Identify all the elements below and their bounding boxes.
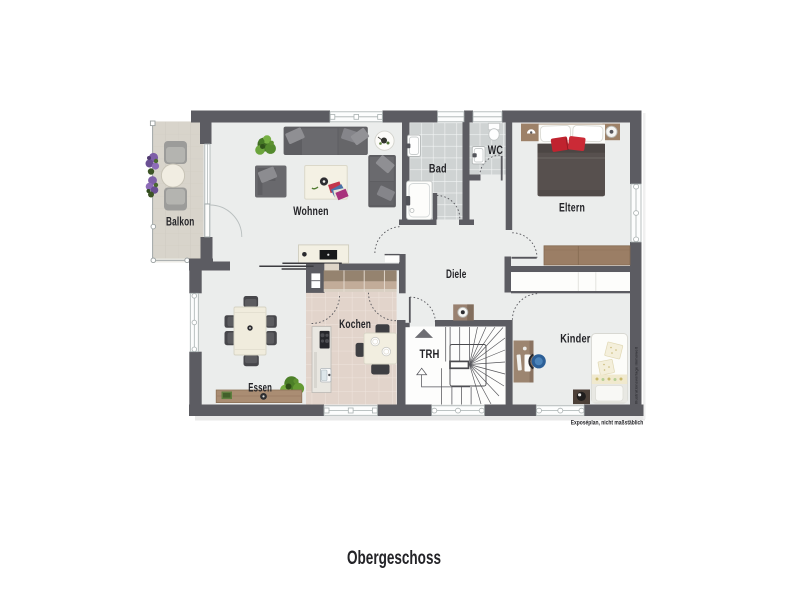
svg-text:WC: WC	[488, 145, 503, 157]
svg-text:Illustrationsvorlage immowelt: Illustrationsvorlage immowelt	[634, 346, 639, 404]
svg-text:Balkon: Balkon	[166, 217, 195, 229]
svg-text:Wohnen: Wohnen	[293, 206, 329, 218]
svg-text:Diele: Diele	[446, 269, 467, 281]
svg-text:Essen: Essen	[248, 382, 272, 394]
svg-text:Obergeschoss: Obergeschoss	[347, 547, 441, 569]
svg-text:Exposéplan, nicht maßstäblich: Exposéplan, nicht maßstäblich	[571, 420, 644, 427]
svg-text:Kinder: Kinder	[560, 334, 591, 346]
svg-text:TRH: TRH	[420, 349, 440, 361]
svg-text:Kochen: Kochen	[339, 319, 371, 331]
svg-text:Eltern: Eltern	[559, 202, 585, 214]
svg-text:Bad: Bad	[429, 164, 447, 176]
